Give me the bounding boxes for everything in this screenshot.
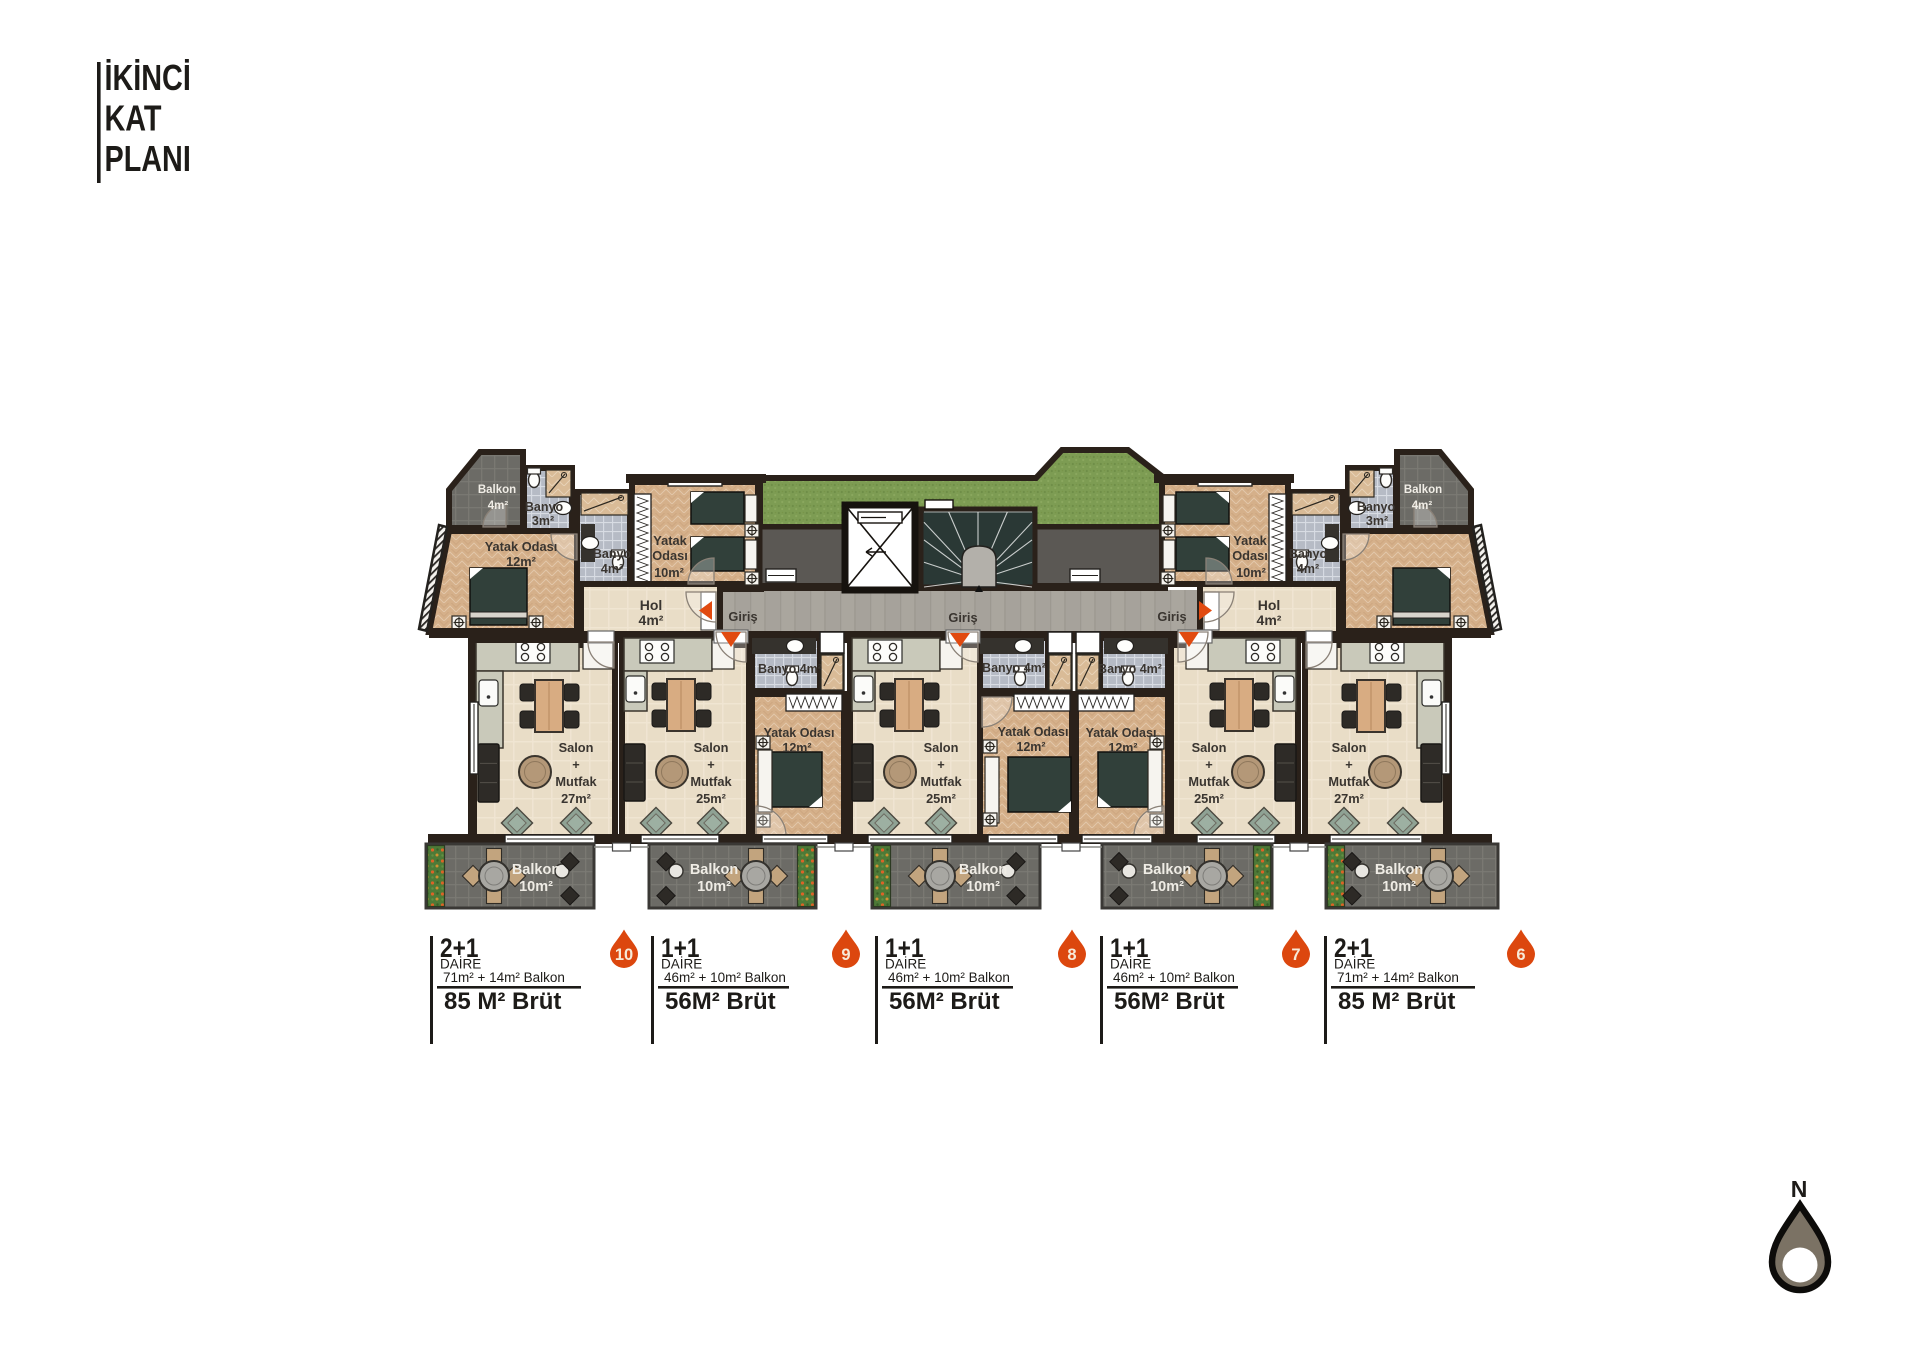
svg-text:Odası: Odası (652, 548, 688, 563)
svg-text:KAT: KAT (105, 97, 162, 138)
svg-text:10m²: 10m² (697, 879, 731, 895)
svg-text:Mutfak: Mutfak (555, 774, 597, 789)
svg-text:25m²: 25m² (1194, 791, 1224, 806)
svg-text:Salon: Salon (924, 740, 959, 755)
svg-text:Mutfak: Mutfak (1328, 774, 1370, 789)
svg-text:Giriş: Giriş (1157, 609, 1186, 624)
svg-text:Salon: Salon (1332, 740, 1367, 755)
svg-text:Hol: Hol (1258, 597, 1281, 613)
svg-text:46m² + 10m² Balkon: 46m² + 10m² Balkon (888, 970, 1010, 985)
svg-text:25m²: 25m² (696, 791, 726, 806)
svg-text:12m²: 12m² (782, 741, 811, 755)
svg-text:Mutfak: Mutfak (1188, 774, 1230, 789)
svg-text:Balkon: Balkon (1143, 862, 1191, 878)
svg-text:46m² + 10m² Balkon: 46m² + 10m² Balkon (1113, 970, 1235, 985)
svg-text:+: + (1345, 757, 1352, 772)
svg-text:Yatak: Yatak (1233, 533, 1267, 548)
svg-text:Mutfak: Mutfak (920, 774, 962, 789)
svg-text:Balkon: Balkon (1375, 862, 1423, 878)
svg-text:+: + (937, 757, 944, 772)
svg-text:3m²: 3m² (532, 514, 554, 528)
svg-text:10m²: 10m² (1236, 565, 1266, 580)
svg-text:Banyo: Banyo (593, 547, 632, 561)
svg-text:+: + (1205, 757, 1212, 772)
svg-text:Banyo 4m²: Banyo 4m² (982, 661, 1046, 675)
svg-text:Balkon: Balkon (690, 862, 738, 878)
svg-text:4m²: 4m² (1412, 500, 1433, 512)
svg-text:Balkon: Balkon (512, 862, 560, 878)
svg-text:85 M² Brüt: 85 M² Brüt (1338, 988, 1455, 1015)
svg-text:71m² + 14m² Balkon: 71m² + 14m² Balkon (443, 970, 565, 985)
svg-text:4m²: 4m² (1297, 562, 1319, 576)
svg-text:27m²: 27m² (1334, 791, 1364, 806)
svg-text:Salon: Salon (694, 740, 729, 755)
svg-text:Salon: Salon (559, 740, 594, 755)
svg-text:4m²: 4m² (488, 500, 509, 512)
svg-text:Giriş: Giriş (948, 610, 977, 625)
svg-text:Yatak Odası: Yatak Odası (998, 725, 1069, 739)
svg-text:Balkon: Balkon (478, 484, 516, 496)
svg-text:4m²: 4m² (601, 562, 623, 576)
svg-text:10: 10 (615, 946, 633, 964)
svg-text:3m²: 3m² (1366, 514, 1388, 528)
svg-text:Banyo 4m²: Banyo 4m² (758, 662, 822, 676)
svg-text:Mutfak: Mutfak (690, 774, 732, 789)
svg-text:Hol: Hol (640, 597, 663, 613)
svg-text:8: 8 (1067, 946, 1076, 964)
svg-text:56M² Brüt: 56M² Brüt (889, 988, 1000, 1015)
svg-text:71m² + 14m² Balkon: 71m² + 14m² Balkon (1337, 970, 1459, 985)
svg-text:Banyo 4m²: Banyo 4m² (1098, 662, 1162, 676)
svg-text:Salon: Salon (1192, 740, 1227, 755)
svg-text:10m²: 10m² (519, 879, 553, 895)
svg-text:PLANI: PLANI (105, 138, 191, 179)
svg-text:Yatak Odası: Yatak Odası (1086, 726, 1157, 740)
svg-text:+: + (572, 757, 579, 772)
svg-text:Banyo: Banyo (1289, 547, 1328, 561)
svg-text:56M² Brüt: 56M² Brüt (665, 988, 776, 1015)
svg-text:4m²: 4m² (1257, 612, 1282, 628)
svg-text:İKİNCİ: İKİNCİ (105, 57, 191, 98)
svg-text:Banyo: Banyo (525, 500, 564, 514)
svg-text:Yatak Odası: Yatak Odası (485, 539, 558, 554)
svg-text:Balkon: Balkon (1404, 484, 1442, 496)
svg-text:Yatak Odası: Yatak Odası (764, 726, 835, 740)
svg-text:9: 9 (841, 946, 850, 964)
svg-text:10m²: 10m² (654, 565, 684, 580)
svg-text:12m²: 12m² (506, 554, 536, 569)
svg-text:12m²: 12m² (1016, 740, 1045, 754)
svg-text:27m²: 27m² (561, 791, 591, 806)
svg-text:10m²: 10m² (1150, 879, 1184, 895)
svg-text:+: + (707, 757, 714, 772)
svg-text:Odası: Odası (1232, 548, 1268, 563)
svg-text:Yatak: Yatak (653, 533, 687, 548)
svg-text:10m²: 10m² (966, 879, 1000, 895)
svg-text:Giriş: Giriş (728, 609, 757, 624)
svg-text:N: N (1791, 1176, 1808, 1202)
svg-text:85 M² Brüt: 85 M² Brüt (444, 988, 561, 1015)
svg-text:Banyo: Banyo (1357, 500, 1396, 514)
svg-text:6: 6 (1516, 946, 1525, 964)
svg-text:25m²: 25m² (926, 791, 956, 806)
svg-text:Balkon: Balkon (959, 862, 1007, 878)
svg-text:46m² + 10m² Balkon: 46m² + 10m² Balkon (664, 970, 786, 985)
svg-text:56M² Brüt: 56M² Brüt (1114, 988, 1225, 1015)
svg-text:12m²: 12m² (1108, 741, 1137, 755)
svg-text:10m²: 10m² (1382, 879, 1416, 895)
svg-text:7: 7 (1291, 946, 1300, 964)
svg-text:4m²: 4m² (639, 612, 664, 628)
